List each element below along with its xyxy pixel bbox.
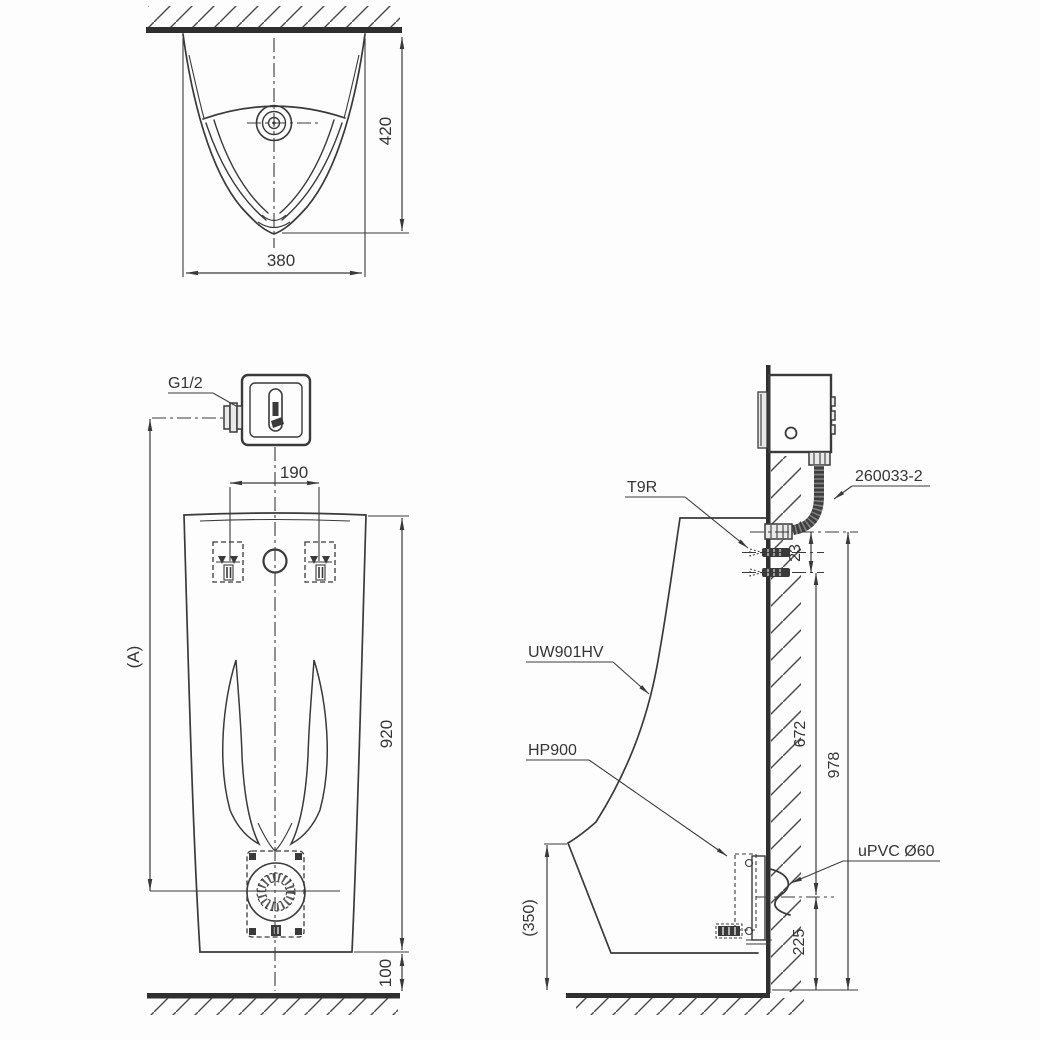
dim-350: (350): [521, 844, 567, 990]
dim-A: (A): [124, 419, 340, 891]
dim-23-text: 23: [787, 544, 804, 562]
ceiling-hatch: [148, 6, 400, 27]
front-view: G1/2: [124, 375, 409, 1015]
urinal-side-outline: [568, 518, 766, 953]
dim-350-text: (350): [521, 899, 538, 936]
label-g12: G1/2: [168, 375, 236, 406]
dim-100-text: 100: [376, 959, 395, 987]
flush-valve-box-side: [758, 375, 835, 465]
floor-hatch-front: [150, 998, 398, 1015]
flush-valve-box-front: [242, 375, 310, 445]
side-view: T9R 260033-2 UW901HV HP900 uPVC Ø60 2: [521, 365, 940, 1015]
urinal-installation-drawing: 420 380 G1/2: [0, 0, 1040, 1040]
label-drain-pipe: uPVC Ø60: [791, 843, 940, 883]
top-view-extension-lines: [183, 38, 409, 277]
dim-978: 978: [826, 532, 848, 990]
floor-hatch-side: [576, 998, 772, 1015]
dim-A-text: (A): [124, 646, 143, 669]
mounting-bracket-right: [305, 542, 335, 582]
label-t9r: T9R: [625, 479, 748, 548]
dim-920-text: 920: [377, 720, 396, 748]
dim-190-text: 190: [280, 463, 308, 482]
mounting-bracket-left: [213, 542, 243, 582]
dim-100: 100: [376, 954, 402, 991]
label-model-text: UW901HV: [528, 644, 604, 661]
label-hose: 260033-2: [834, 468, 930, 499]
technical-drawing-page: 420 380 G1/2: [0, 0, 1040, 1040]
dim-978-text: 978: [826, 752, 843, 779]
trap-side-view: [716, 854, 772, 944]
dim-920: 920: [354, 516, 409, 952]
dim-672-text: 672: [792, 721, 809, 748]
dim-225-text: 225: [791, 929, 808, 956]
ceiling-wall-line: [146, 27, 402, 33]
top-view: 420 380: [146, 6, 409, 277]
label-trap: HP900: [526, 742, 727, 856]
label-hose-text: 260033-2: [855, 468, 923, 485]
floor-hatch-corner: [772, 998, 804, 1015]
inlet-fitting-g12: [224, 403, 242, 432]
drain-front-view: [247, 851, 305, 937]
sensor-eye-icon: [786, 428, 797, 439]
wall-line-side: [766, 365, 771, 993]
dim-420: 420: [376, 37, 402, 231]
dim-420-text: 420: [376, 117, 395, 145]
label-drain-pipe-text: uPVC Ø60: [858, 843, 935, 860]
floor-line-side: [566, 993, 770, 998]
dim-380-text: 380: [267, 251, 295, 270]
floor-line-front: [147, 993, 400, 999]
label-g12-text: G1/2: [168, 375, 203, 392]
label-t9r-text: T9R: [627, 479, 657, 496]
spreader-top-view: [247, 106, 322, 141]
dim-380: 380: [186, 251, 362, 273]
label-model: UW901HV: [526, 644, 649, 694]
label-trap-text: HP900: [528, 742, 577, 759]
